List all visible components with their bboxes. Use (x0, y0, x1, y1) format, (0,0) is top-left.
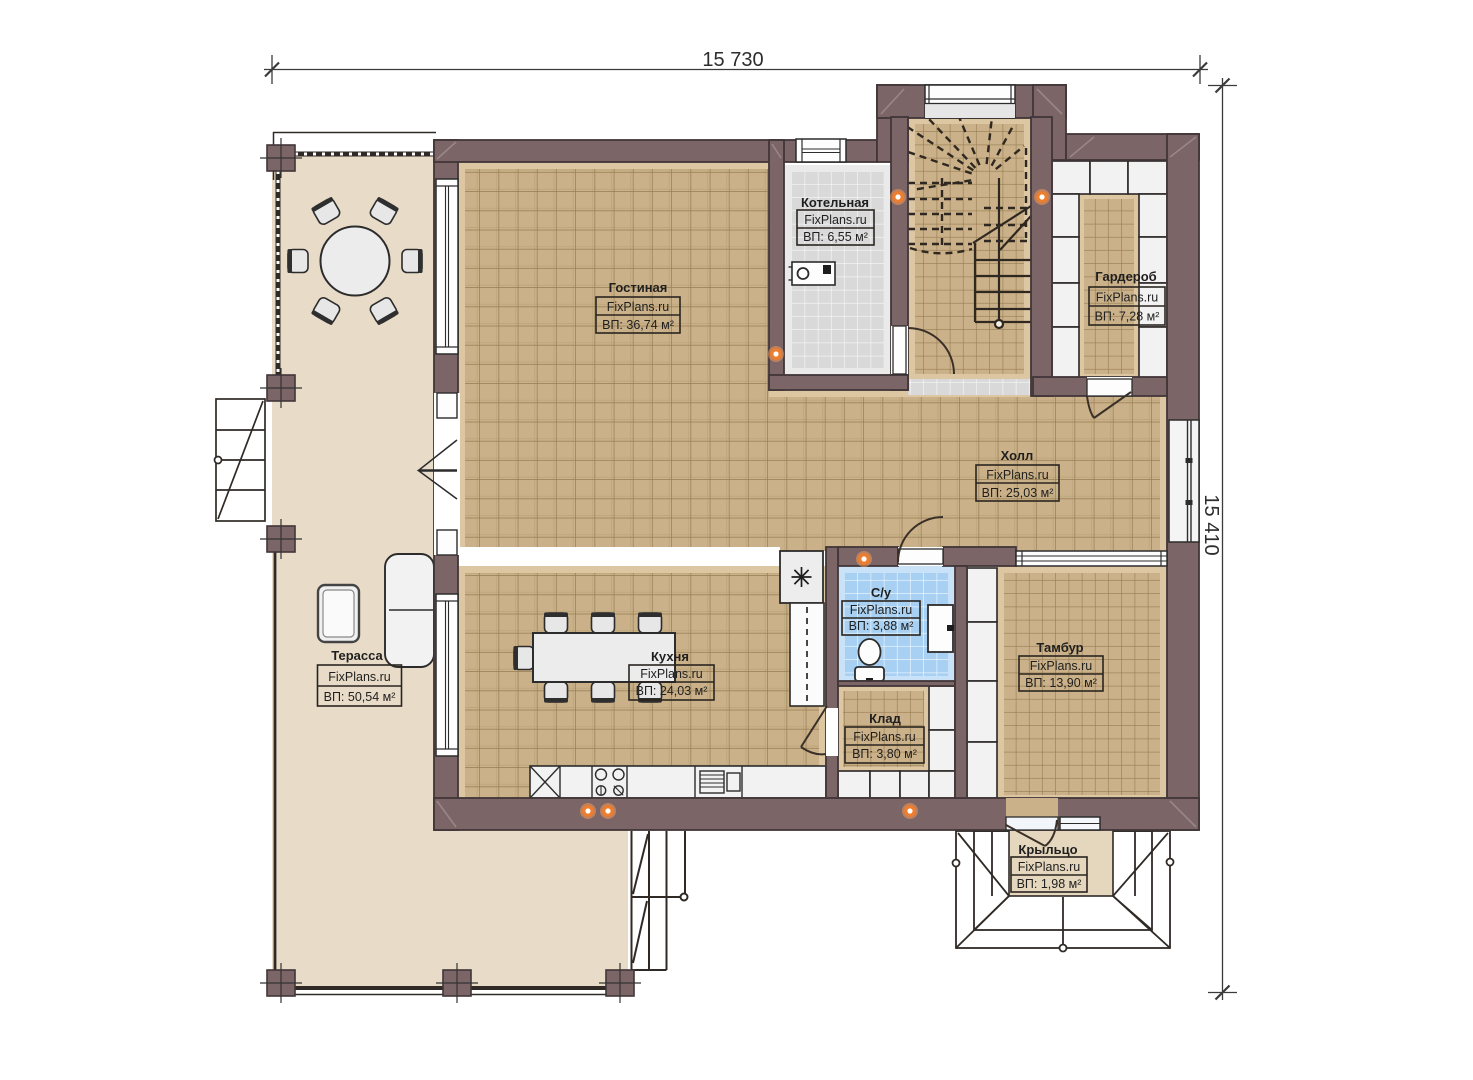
svg-text:ВП: 3,80 м²: ВП: 3,80 м² (852, 747, 917, 761)
svg-text:FixPlans.ru: FixPlans.ru (1018, 860, 1081, 874)
svg-text:Крыльцо: Крыльцо (1018, 842, 1077, 857)
svg-text:FixPlans.ru: FixPlans.ru (328, 670, 391, 684)
svg-text:Гардероб: Гардероб (1095, 269, 1156, 284)
svg-text:С/у: С/у (871, 585, 892, 600)
svg-text:15 730: 15 730 (702, 49, 763, 71)
svg-text:FixPlans.ru: FixPlans.ru (850, 603, 913, 617)
svg-text:Котельная: Котельная (801, 195, 869, 210)
svg-text:FixPlans.ru: FixPlans.ru (1096, 291, 1159, 305)
svg-text:ВП: 6,55 м²: ВП: 6,55 м² (803, 230, 868, 244)
svg-text:ВП: 24,03 м²: ВП: 24,03 м² (636, 684, 708, 698)
svg-text:Клад: Клад (869, 711, 901, 726)
svg-text:FixPlans.ru: FixPlans.ru (804, 213, 867, 227)
svg-text:FixPlans.ru: FixPlans.ru (853, 730, 916, 744)
svg-text:ВП: 25,03 м²: ВП: 25,03 м² (982, 486, 1054, 500)
svg-text:Холл: Холл (1001, 448, 1034, 463)
svg-text:ВП: 1,98 м²: ВП: 1,98 м² (1017, 877, 1082, 891)
svg-text:ВП: 13,90 м²: ВП: 13,90 м² (1025, 676, 1097, 690)
svg-text:ВП: 50,54 м²: ВП: 50,54 м² (324, 690, 396, 704)
svg-text:FixPlans.ru: FixPlans.ru (1030, 659, 1093, 673)
svg-text:FixPlans.ru: FixPlans.ru (986, 468, 1049, 482)
svg-text:Гостиная: Гостиная (609, 280, 668, 295)
svg-text:ВП: 36,74 м²: ВП: 36,74 м² (602, 318, 674, 332)
svg-text:FixPlans.ru: FixPlans.ru (640, 667, 703, 681)
svg-text:ВП: 7,28 м²: ВП: 7,28 м² (1095, 310, 1160, 324)
svg-text:ВП: 3,88 м²: ВП: 3,88 м² (849, 619, 914, 633)
svg-text:FixPlans.ru: FixPlans.ru (607, 300, 670, 314)
svg-text:Тамбур: Тамбур (1036, 640, 1083, 655)
svg-text:Терасса: Терасса (331, 648, 383, 663)
svg-text:15 410: 15 410 (1200, 494, 1222, 555)
svg-text:Кухня: Кухня (651, 649, 689, 664)
